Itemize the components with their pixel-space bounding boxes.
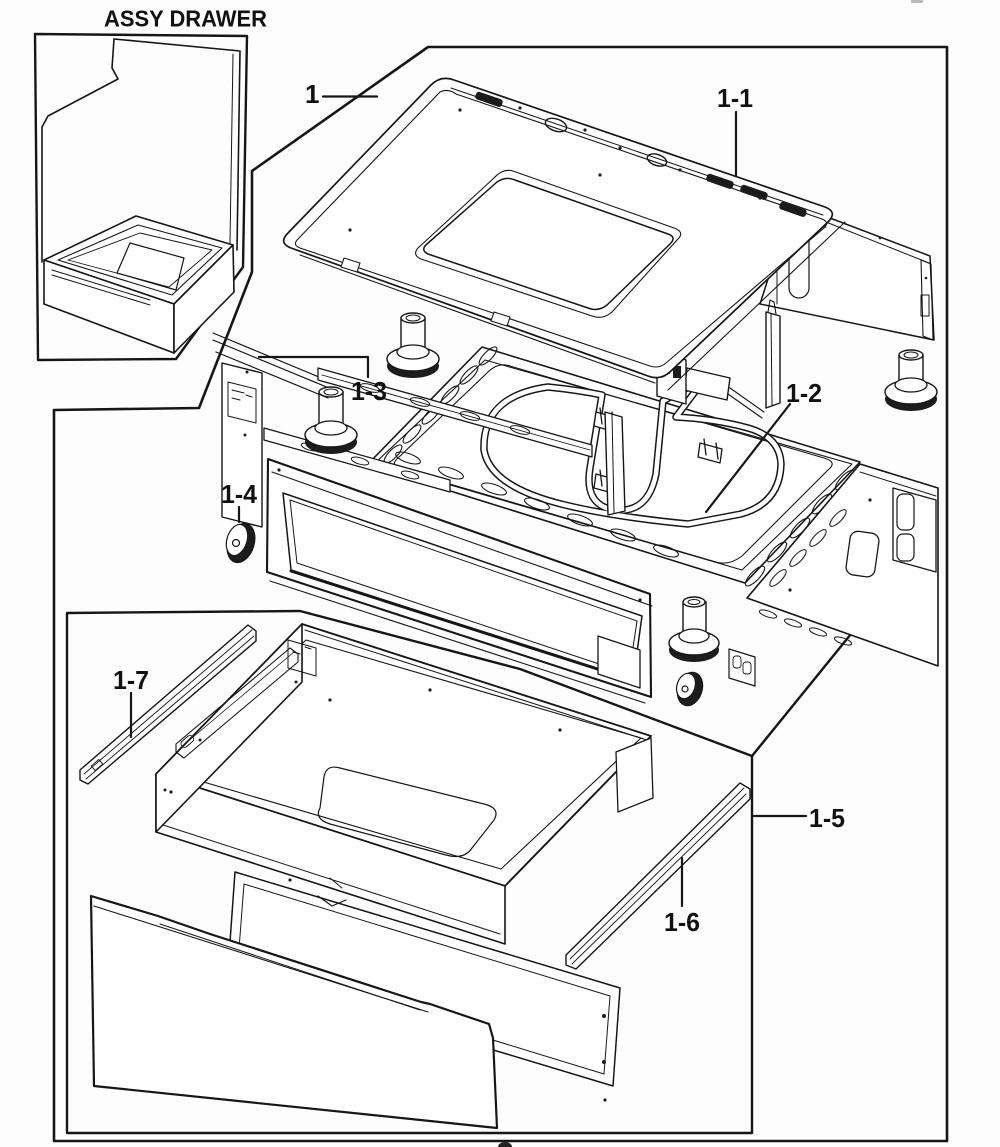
svg-text:ASSY DRAWER: ASSY DRAWER [104, 6, 267, 32]
svg-text:1-4: 1-4 [221, 479, 258, 509]
svg-text:1-7: 1-7 [113, 665, 149, 695]
svg-text:1-2: 1-2 [786, 378, 822, 408]
svg-text:1-6: 1-6 [664, 907, 700, 937]
svg-text:1: 1 [305, 79, 319, 109]
svg-text:1-5: 1-5 [809, 803, 845, 833]
svg-text:1-3: 1-3 [351, 376, 387, 406]
svg-text:1-1: 1-1 [717, 83, 753, 113]
